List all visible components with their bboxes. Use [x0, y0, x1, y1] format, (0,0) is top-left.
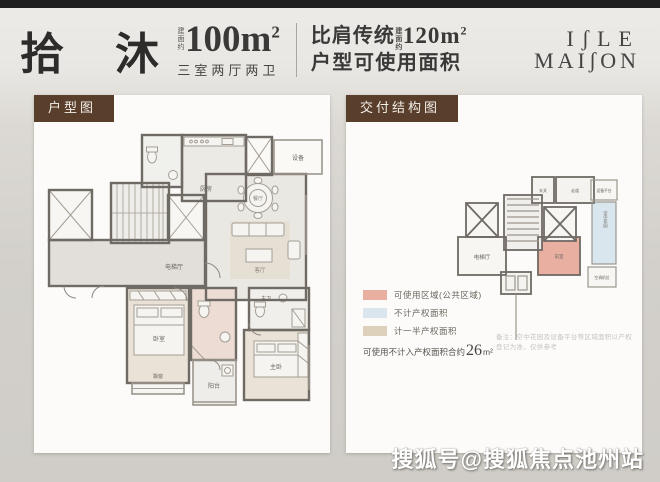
core-corridor-floor — [49, 240, 205, 286]
compare-prefix-label: 建面约 — [395, 27, 402, 51]
legend-label-half: 计一半产权面积 — [394, 325, 457, 337]
area-value: 100m2 — [185, 21, 280, 58]
usable-area-value: 26 — [466, 343, 482, 359]
structure-foyer-label: 玄关 — [539, 187, 547, 193]
elevator-hall-label: 电梯厅 — [165, 263, 183, 271]
structure-drawing: 电梯厅 前室 玄关 走道 设备平台 空中花园 空调机位 — [346, 95, 642, 453]
compare-value: 120m2 — [403, 24, 468, 48]
legend-swatch-public — [363, 290, 387, 300]
header-divider — [296, 23, 297, 77]
living-label: 客厅 — [254, 266, 266, 274]
compare-line2: 户型可使用面积 — [311, 51, 468, 76]
floorplan-drawing: 厨房 设备 电梯厅 餐厅 客厅 卧室 飘窗 阳台 主卫 主卧 — [34, 95, 330, 453]
legend-swatch-half — [363, 326, 387, 336]
legend-label-nonproperty: 不计产权面积 — [394, 307, 448, 319]
structure-sky-garden-label: 空中花园 — [604, 209, 609, 229]
kitchen-label: 厨房 — [200, 185, 212, 193]
compare-block: 比肩传统 建面约 120m2 户型可使用面积 — [311, 24, 468, 76]
watermark: 搜狐号@搜狐焦点池州站 — [392, 442, 644, 474]
structure-equipment-platform-label: 设备平台 — [596, 188, 611, 193]
bedroom-label: 卧室 — [153, 335, 165, 343]
master-bath-label: 主卫 — [261, 295, 271, 302]
legend-item: 可使用区域(公共区域) — [363, 289, 493, 301]
legend-swatch-nonproperty — [363, 308, 387, 318]
balcony-label: 阳台 — [208, 382, 220, 390]
dining-label: 餐厅 — [253, 195, 263, 202]
page-title: 拾 沐 — [20, 18, 179, 82]
brand-logo-line2: MAIʃON — [534, 50, 640, 72]
brand-logo: IʃLE MAIʃON — [534, 28, 640, 72]
master-bedroom-label: 主卧 — [270, 363, 282, 371]
equipment-label: 设备 — [292, 154, 304, 162]
structure-elevator-hall-label: 电梯厅 — [474, 253, 491, 261]
structure-panel: 电梯厅 前室 玄关 走道 设备平台 空中花园 空调机位 可使用区域(公共区域) … — [346, 95, 642, 453]
legend-item: 计一半产权面积 — [363, 325, 493, 337]
floorplan-panel: 厨房 设备 电梯厅 餐厅 客厅 卧室 飘窗 阳台 主卫 主卧 户型图 — [34, 95, 330, 453]
legend-item: 不计产权面积 — [363, 307, 493, 319]
room-layout-label: 三室两厅两卫 — [177, 60, 279, 79]
poster-page: 拾 沐 建面约 100m2 三室两厅两卫 比肩传统 建面约 120m2 户型可使… — [0, 0, 660, 482]
bay-window-label: 飘窗 — [153, 373, 163, 380]
header: 拾 沐 建面约 100m2 三室两厅两卫 比肩传统 建面约 120m2 户型可使… — [0, 8, 660, 92]
area-block: 建面约 100m2 三室两厅两卫 — [177, 21, 280, 79]
top-dark-bar — [0, 0, 660, 8]
area-prefix-label: 建面约 — [177, 27, 184, 51]
fine-print-note: 备注：空中花园及设备平台等区域面积以产权登记为准，仅供参考 — [496, 331, 634, 351]
legend-label-public: 可使用区域(公共区域) — [394, 289, 482, 301]
legend: 可使用区域(公共区域) 不计产权面积 计一半产权面积 可使用不计入产权面积合约 … — [363, 289, 493, 359]
structure-hallway-label: 走道 — [571, 187, 579, 193]
brand-logo-line1: IʃLE — [534, 28, 640, 50]
compare-pre: 比肩传统 — [311, 24, 395, 49]
legend-summary: 可使用不计入产权面积合约 26 m² — [363, 343, 493, 359]
tab-floorplan: 户型图 — [34, 95, 114, 122]
tab-structure: 交付结构图 — [346, 95, 458, 122]
structure-ac-platform-label: 空调机位 — [594, 275, 609, 280]
structure-vestibule-label: 前室 — [555, 253, 564, 260]
